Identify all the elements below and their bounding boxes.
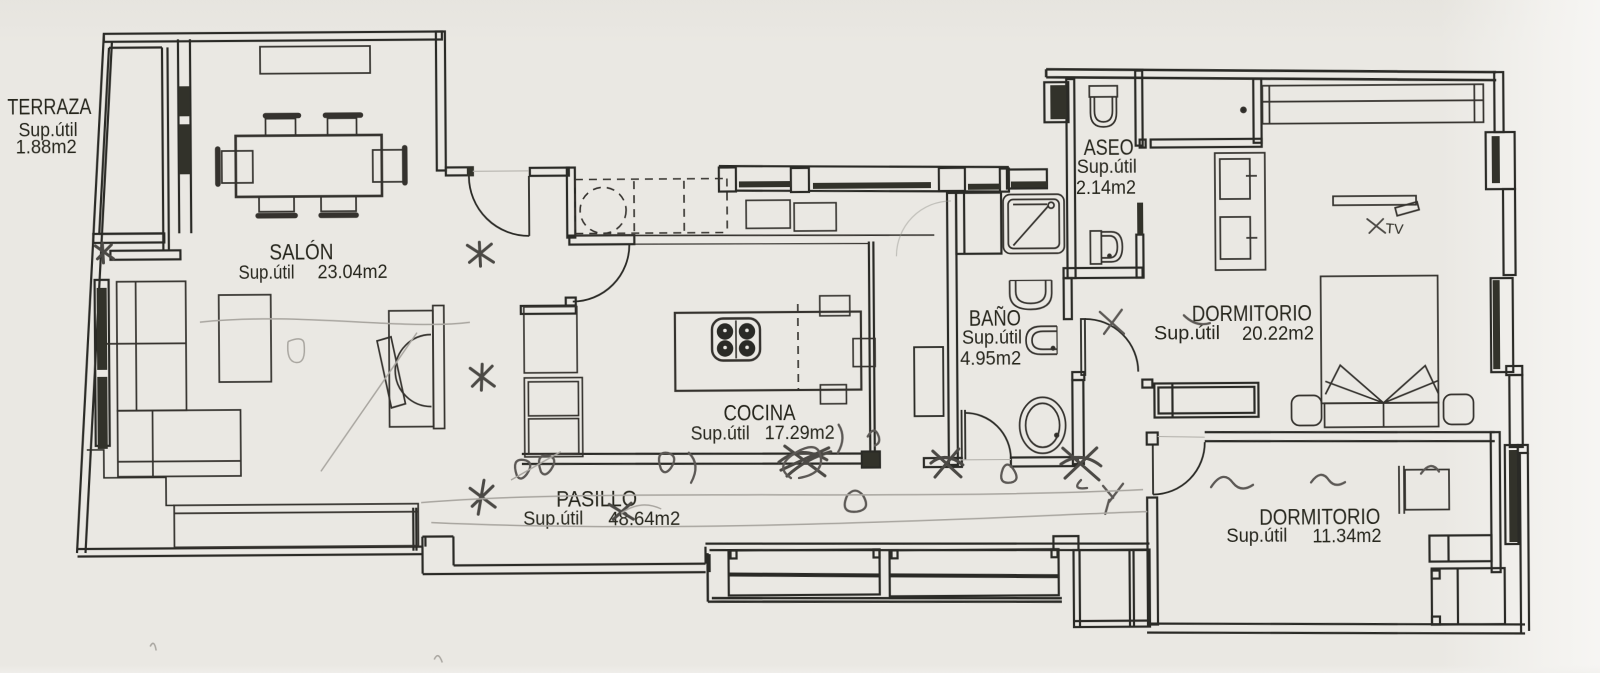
svg-text:20.22m2: 20.22m2	[1242, 323, 1314, 345]
svg-text:SALÓN: SALÓN	[269, 239, 333, 264]
svg-text:COCINA: COCINA	[723, 400, 795, 426]
svg-text:Sup.útil: Sup.útil	[238, 263, 294, 284]
svg-text:4.95m2: 4.95m2	[960, 348, 1021, 369]
svg-text:Sup.útil: Sup.útil	[1154, 323, 1220, 344]
svg-text:1.88m2: 1.88m2	[16, 137, 77, 158]
svg-text:23.04m2: 23.04m2	[317, 262, 387, 283]
svg-text:Sup.útil: Sup.útil	[1226, 526, 1287, 547]
svg-text:TERRAZA: TERRAZA	[7, 94, 91, 120]
svg-text:Sup.útil: Sup.útil	[1077, 157, 1137, 178]
svg-text:2.14m2: 2.14m2	[1076, 178, 1136, 199]
svg-text:TV: TV	[1385, 220, 1405, 237]
svg-text:Sup.útil: Sup.útil	[691, 423, 750, 444]
svg-text:17.29m2: 17.29m2	[765, 423, 835, 444]
svg-text:Sup.útil: Sup.útil	[962, 327, 1022, 348]
svg-text:11.34m2: 11.34m2	[1312, 526, 1381, 547]
